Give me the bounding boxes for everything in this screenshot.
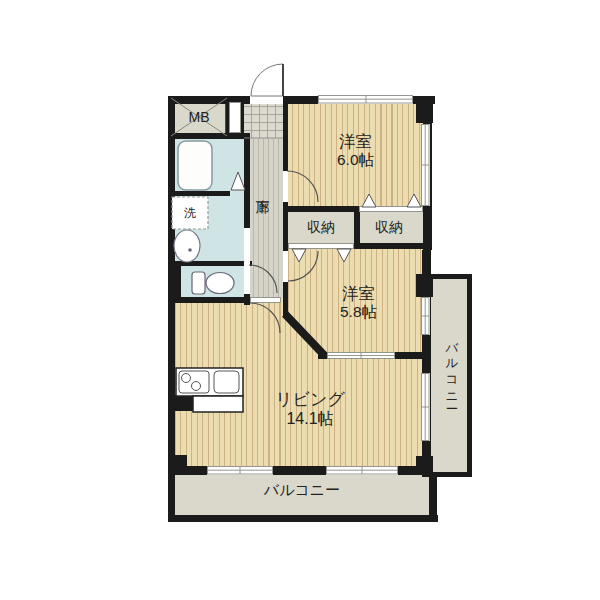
- closet-left-label: 収納: [287, 208, 355, 248]
- living-size: 14.1帖: [200, 410, 420, 429]
- bedroom2-name: 洋室: [287, 284, 430, 303]
- hall-living-door: [250, 303, 280, 333]
- balcony-east-label: バルコニー: [443, 333, 460, 405]
- bedroom1-door: [287, 171, 318, 202]
- entrance-door: [251, 64, 283, 96]
- laundry-label: 洗: [172, 197, 208, 229]
- bedroom1-size: 6.0帖: [287, 151, 424, 169]
- bathtub: [178, 141, 212, 190]
- bedroom2-label: 洋室 5.8帖: [287, 284, 430, 322]
- toilet: [192, 272, 234, 294]
- bathroom-door-icon: [231, 172, 245, 190]
- stove-burner-icon: [182, 374, 191, 383]
- bedroom1-label: 洋室 6.0帖: [287, 132, 424, 170]
- washbasin: [174, 230, 200, 262]
- living-label: リビング 14.1帖: [200, 390, 420, 429]
- balcony-south-label: バルコニー: [175, 478, 429, 502]
- bedroom2-size: 5.8帖: [287, 303, 430, 321]
- living-name: リビング: [200, 390, 420, 410]
- bedroom1-name: 洋室: [287, 132, 424, 151]
- floor-plan: 洋室 6.0帖 洋室 5.8帖 リビング 14.1帖 収納 収納 MB 洗 廊下…: [0, 0, 600, 600]
- meter-box-label: MB: [171, 98, 227, 136]
- closet-right-label: 収納: [355, 208, 423, 248]
- toilet-door: [249, 265, 277, 293]
- hallway-label: 廊下: [254, 188, 272, 192]
